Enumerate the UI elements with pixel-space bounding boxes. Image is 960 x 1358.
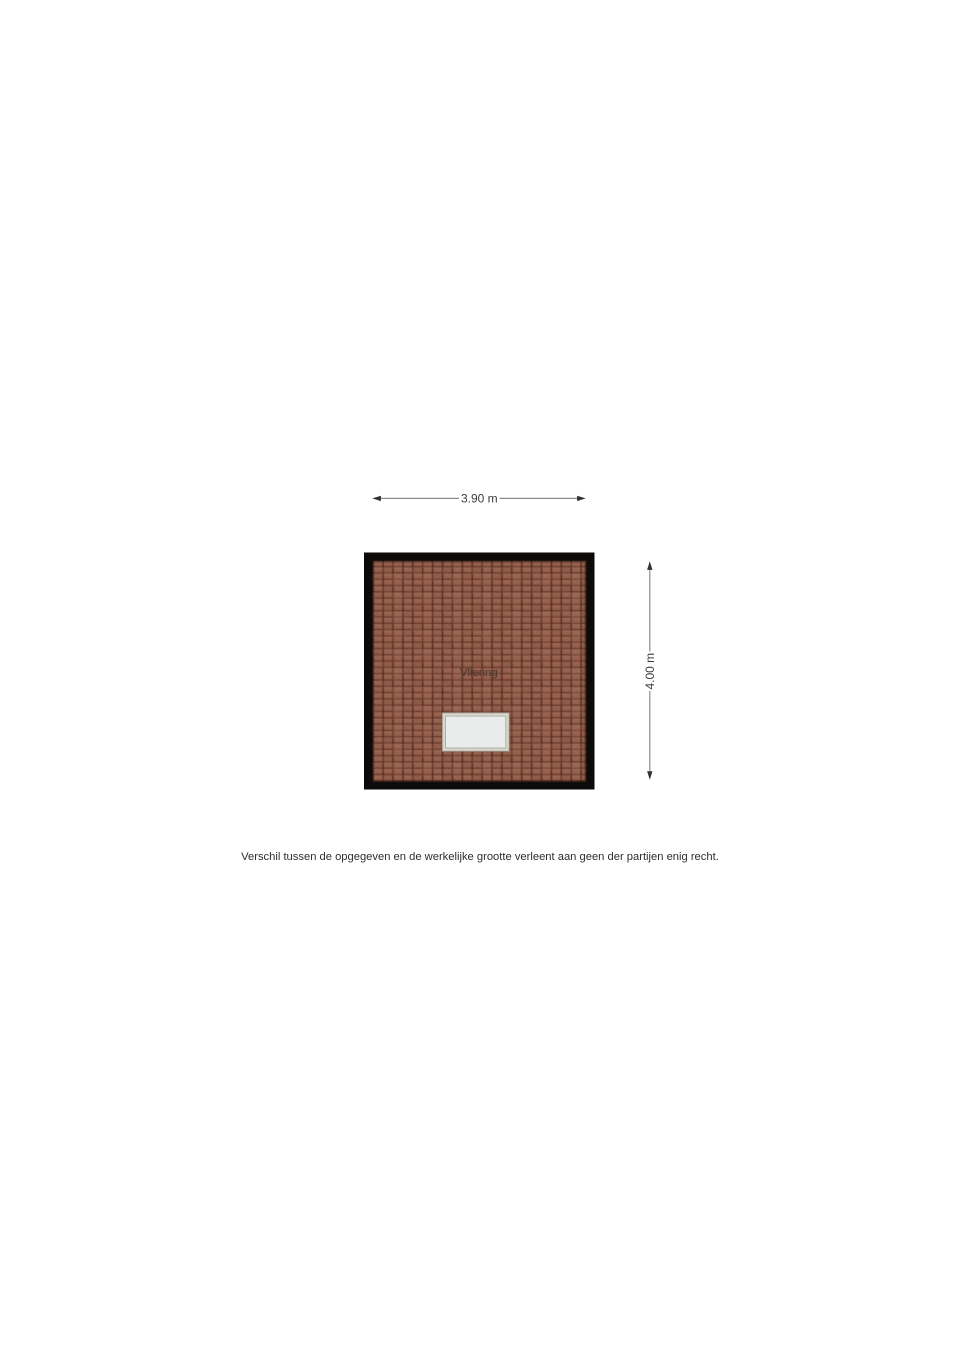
svg-text:Vliering: Vliering	[460, 667, 498, 679]
svg-text:4.00 m: 4.00 m	[643, 653, 657, 690]
svg-text:3.90 m: 3.90 m	[461, 492, 498, 506]
